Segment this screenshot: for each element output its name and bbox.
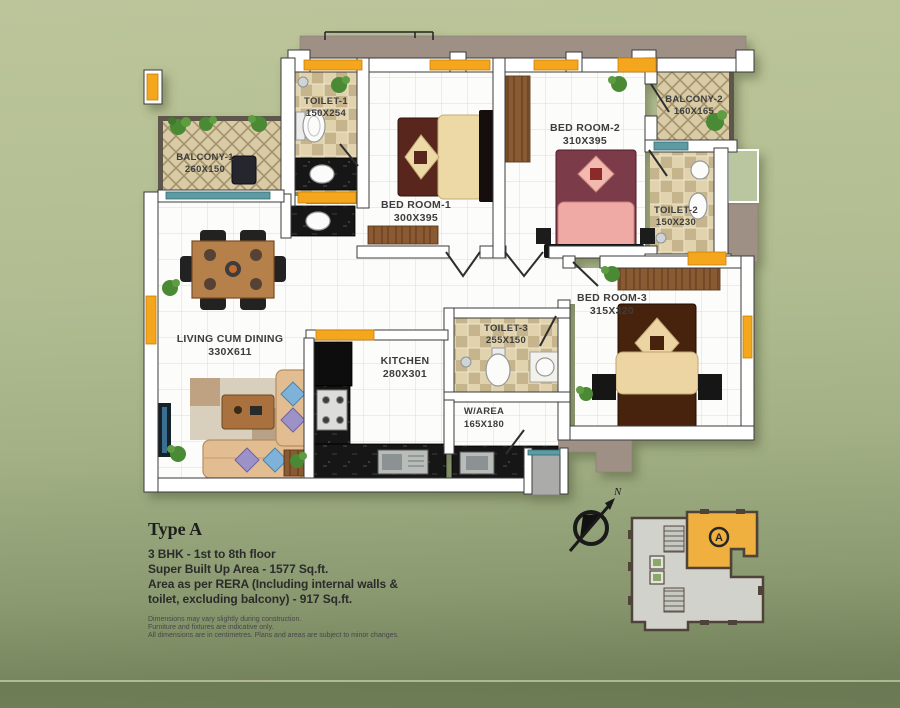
balcony2-label: BALCONY-2 bbox=[665, 94, 723, 105]
disclaimer-1: Dimensions may vary slightly during cons… bbox=[148, 616, 438, 624]
compass-north-label: N bbox=[613, 486, 622, 498]
warea-label: W/AREA bbox=[464, 406, 504, 417]
bedroom2-dims: 310X395 bbox=[563, 135, 607, 147]
toilet3-label: TOILET-3 bbox=[484, 323, 528, 334]
toilet1-label: TOILET-1 bbox=[304, 96, 348, 107]
floor-plan-canvas: BALCONY-1 260X150 TOILET-1 150X254 BED R… bbox=[0, 0, 900, 708]
rug-patch bbox=[190, 378, 220, 406]
toilet2-dims: 150X230 bbox=[656, 217, 696, 228]
tv-cabinet bbox=[312, 342, 352, 386]
title-block: Type A 3 BHK - 1st to 8th floor Super Bu… bbox=[148, 519, 438, 640]
balcony1-dims: 260X150 bbox=[185, 164, 225, 175]
hall-floor-2 bbox=[561, 268, 577, 304]
tap-icon bbox=[461, 357, 471, 367]
plan-type-title: Type A bbox=[148, 519, 438, 540]
bedroom3-label: BED ROOM-3 bbox=[577, 292, 647, 304]
living-label: LIVING CUM DINING bbox=[177, 333, 284, 345]
toilet2-label: TOILET-2 bbox=[654, 205, 698, 216]
bedroom1-wardrobe bbox=[506, 76, 530, 162]
hall-basin-icon bbox=[306, 212, 330, 230]
disclaimer-3: All dimensions are in centimetres. Plans… bbox=[148, 632, 438, 640]
unit-a-label: A bbox=[715, 532, 723, 544]
super-builtup-line: Super Built Up Area - 1577 Sq.ft. bbox=[148, 562, 438, 577]
bed1-icon bbox=[398, 110, 495, 202]
floor-plan: BALCONY-1 260X150 TOILET-1 150X254 BED R… bbox=[144, 32, 758, 495]
warea-dims: 165X180 bbox=[464, 419, 504, 430]
toilet1-dims: 150X254 bbox=[306, 108, 347, 119]
toilet3-basin-icon bbox=[536, 358, 554, 376]
rera-line-2: toilet, excluding balcony) - 917 Sq.ft. bbox=[148, 592, 438, 607]
side-garden-void bbox=[728, 150, 758, 202]
coffee-table-icon bbox=[222, 395, 274, 429]
toilet3-wc-icon bbox=[486, 354, 510, 386]
bed2-side-table-2 bbox=[640, 228, 655, 244]
bedroom3-dims: 315X320 bbox=[590, 305, 634, 317]
bed2-side-table bbox=[536, 228, 551, 244]
balcony-chair-icon bbox=[232, 156, 256, 184]
disclaimer-2: Furniture and fixtures are indicative on… bbox=[148, 624, 438, 632]
stove-icon bbox=[317, 390, 347, 430]
bedroom1-label: BED ROOM-1 bbox=[381, 199, 451, 211]
bed3-side-table-2 bbox=[698, 374, 722, 400]
warea-sink-icon bbox=[460, 452, 494, 474]
toilet3-dims: 255X150 bbox=[486, 335, 526, 346]
bedroom2-label: BED ROOM-2 bbox=[550, 122, 620, 134]
compass-icon: N bbox=[570, 486, 622, 551]
bhk-floor-line: 3 BHK - 1st to 8th floor bbox=[148, 547, 438, 562]
living-dims: 330X611 bbox=[208, 346, 252, 358]
bed1-bench bbox=[368, 226, 438, 244]
dining-set-icon bbox=[180, 230, 286, 310]
screenshot-stage: BALCONY-1 260X150 TOILET-1 150X254 BED R… bbox=[0, 0, 900, 708]
toilet1-basin-icon bbox=[310, 165, 334, 183]
rera-line-1: Area as per RERA (Including internal wal… bbox=[148, 577, 438, 592]
toilet2-basin-icon bbox=[691, 161, 709, 179]
shower-icon bbox=[298, 77, 308, 87]
kitchen-sink-icon bbox=[378, 450, 428, 474]
stairs-icon-2 bbox=[664, 588, 684, 612]
balcony2-dims: 160X165 bbox=[674, 106, 715, 117]
disclaimer-notes: Dimensions may vary slightly during cons… bbox=[148, 616, 438, 640]
key-plan: A bbox=[628, 509, 763, 630]
bed3-side-table bbox=[592, 374, 616, 400]
bedroom1-dims: 300X395 bbox=[394, 212, 438, 224]
balcony1-label: BALCONY-1 bbox=[176, 152, 234, 163]
shower-icon-2 bbox=[656, 233, 666, 243]
kitchen-label: KITCHEN bbox=[381, 355, 430, 367]
stairs-icon bbox=[664, 526, 684, 552]
kitchen-dims: 280X301 bbox=[383, 368, 427, 380]
entrance-landing bbox=[528, 455, 560, 495]
